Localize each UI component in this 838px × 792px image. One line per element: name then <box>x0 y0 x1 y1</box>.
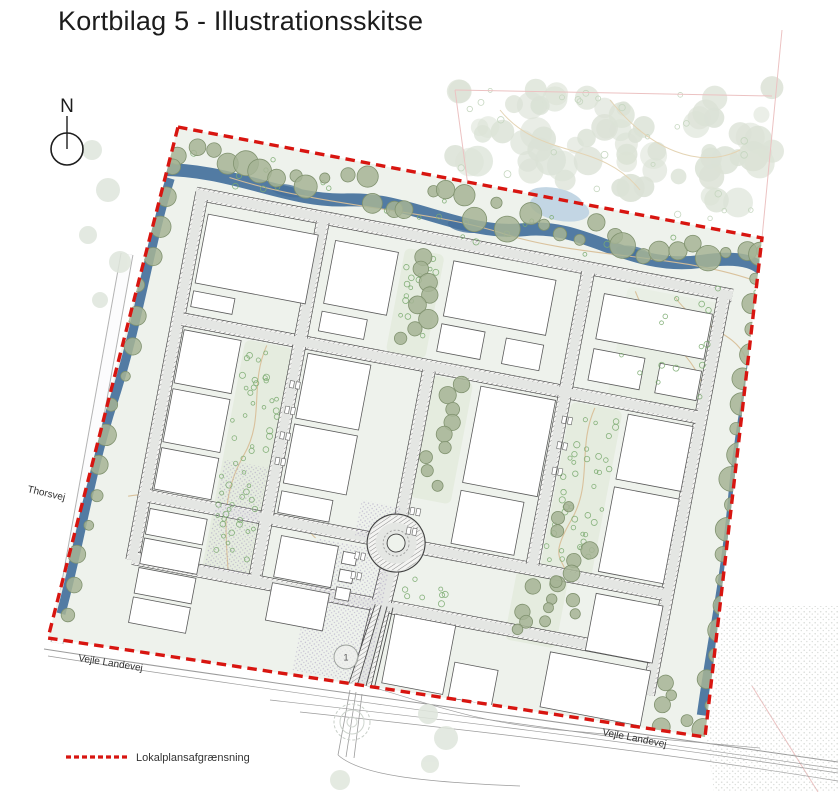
north-arrow-label: N <box>60 96 74 117</box>
street-label-vejle-landevej-west: Vejle Landevej <box>78 653 144 674</box>
plan-area <box>44 117 807 792</box>
street-label-thorsvej: Thorsvej <box>26 484 66 503</box>
north-arrow: N <box>51 96 83 165</box>
page: Kortbilag 5 - Illustrationsskitse <box>0 0 838 792</box>
outside-stipple-area <box>707 606 838 792</box>
legend-item-label: Lokalplansafgrænsning <box>136 752 250 764</box>
map-marker-1: 1 <box>334 645 358 669</box>
map-marker-1-label: 1 <box>343 653 348 663</box>
legend: Lokalplansafgrænsning <box>66 752 250 764</box>
site-plan-map: Thorsvej Vejle Landevej Vejle Landevej 1… <box>0 0 838 792</box>
street-label-vejle-landevej-east: Vejle Landevej <box>601 727 667 750</box>
